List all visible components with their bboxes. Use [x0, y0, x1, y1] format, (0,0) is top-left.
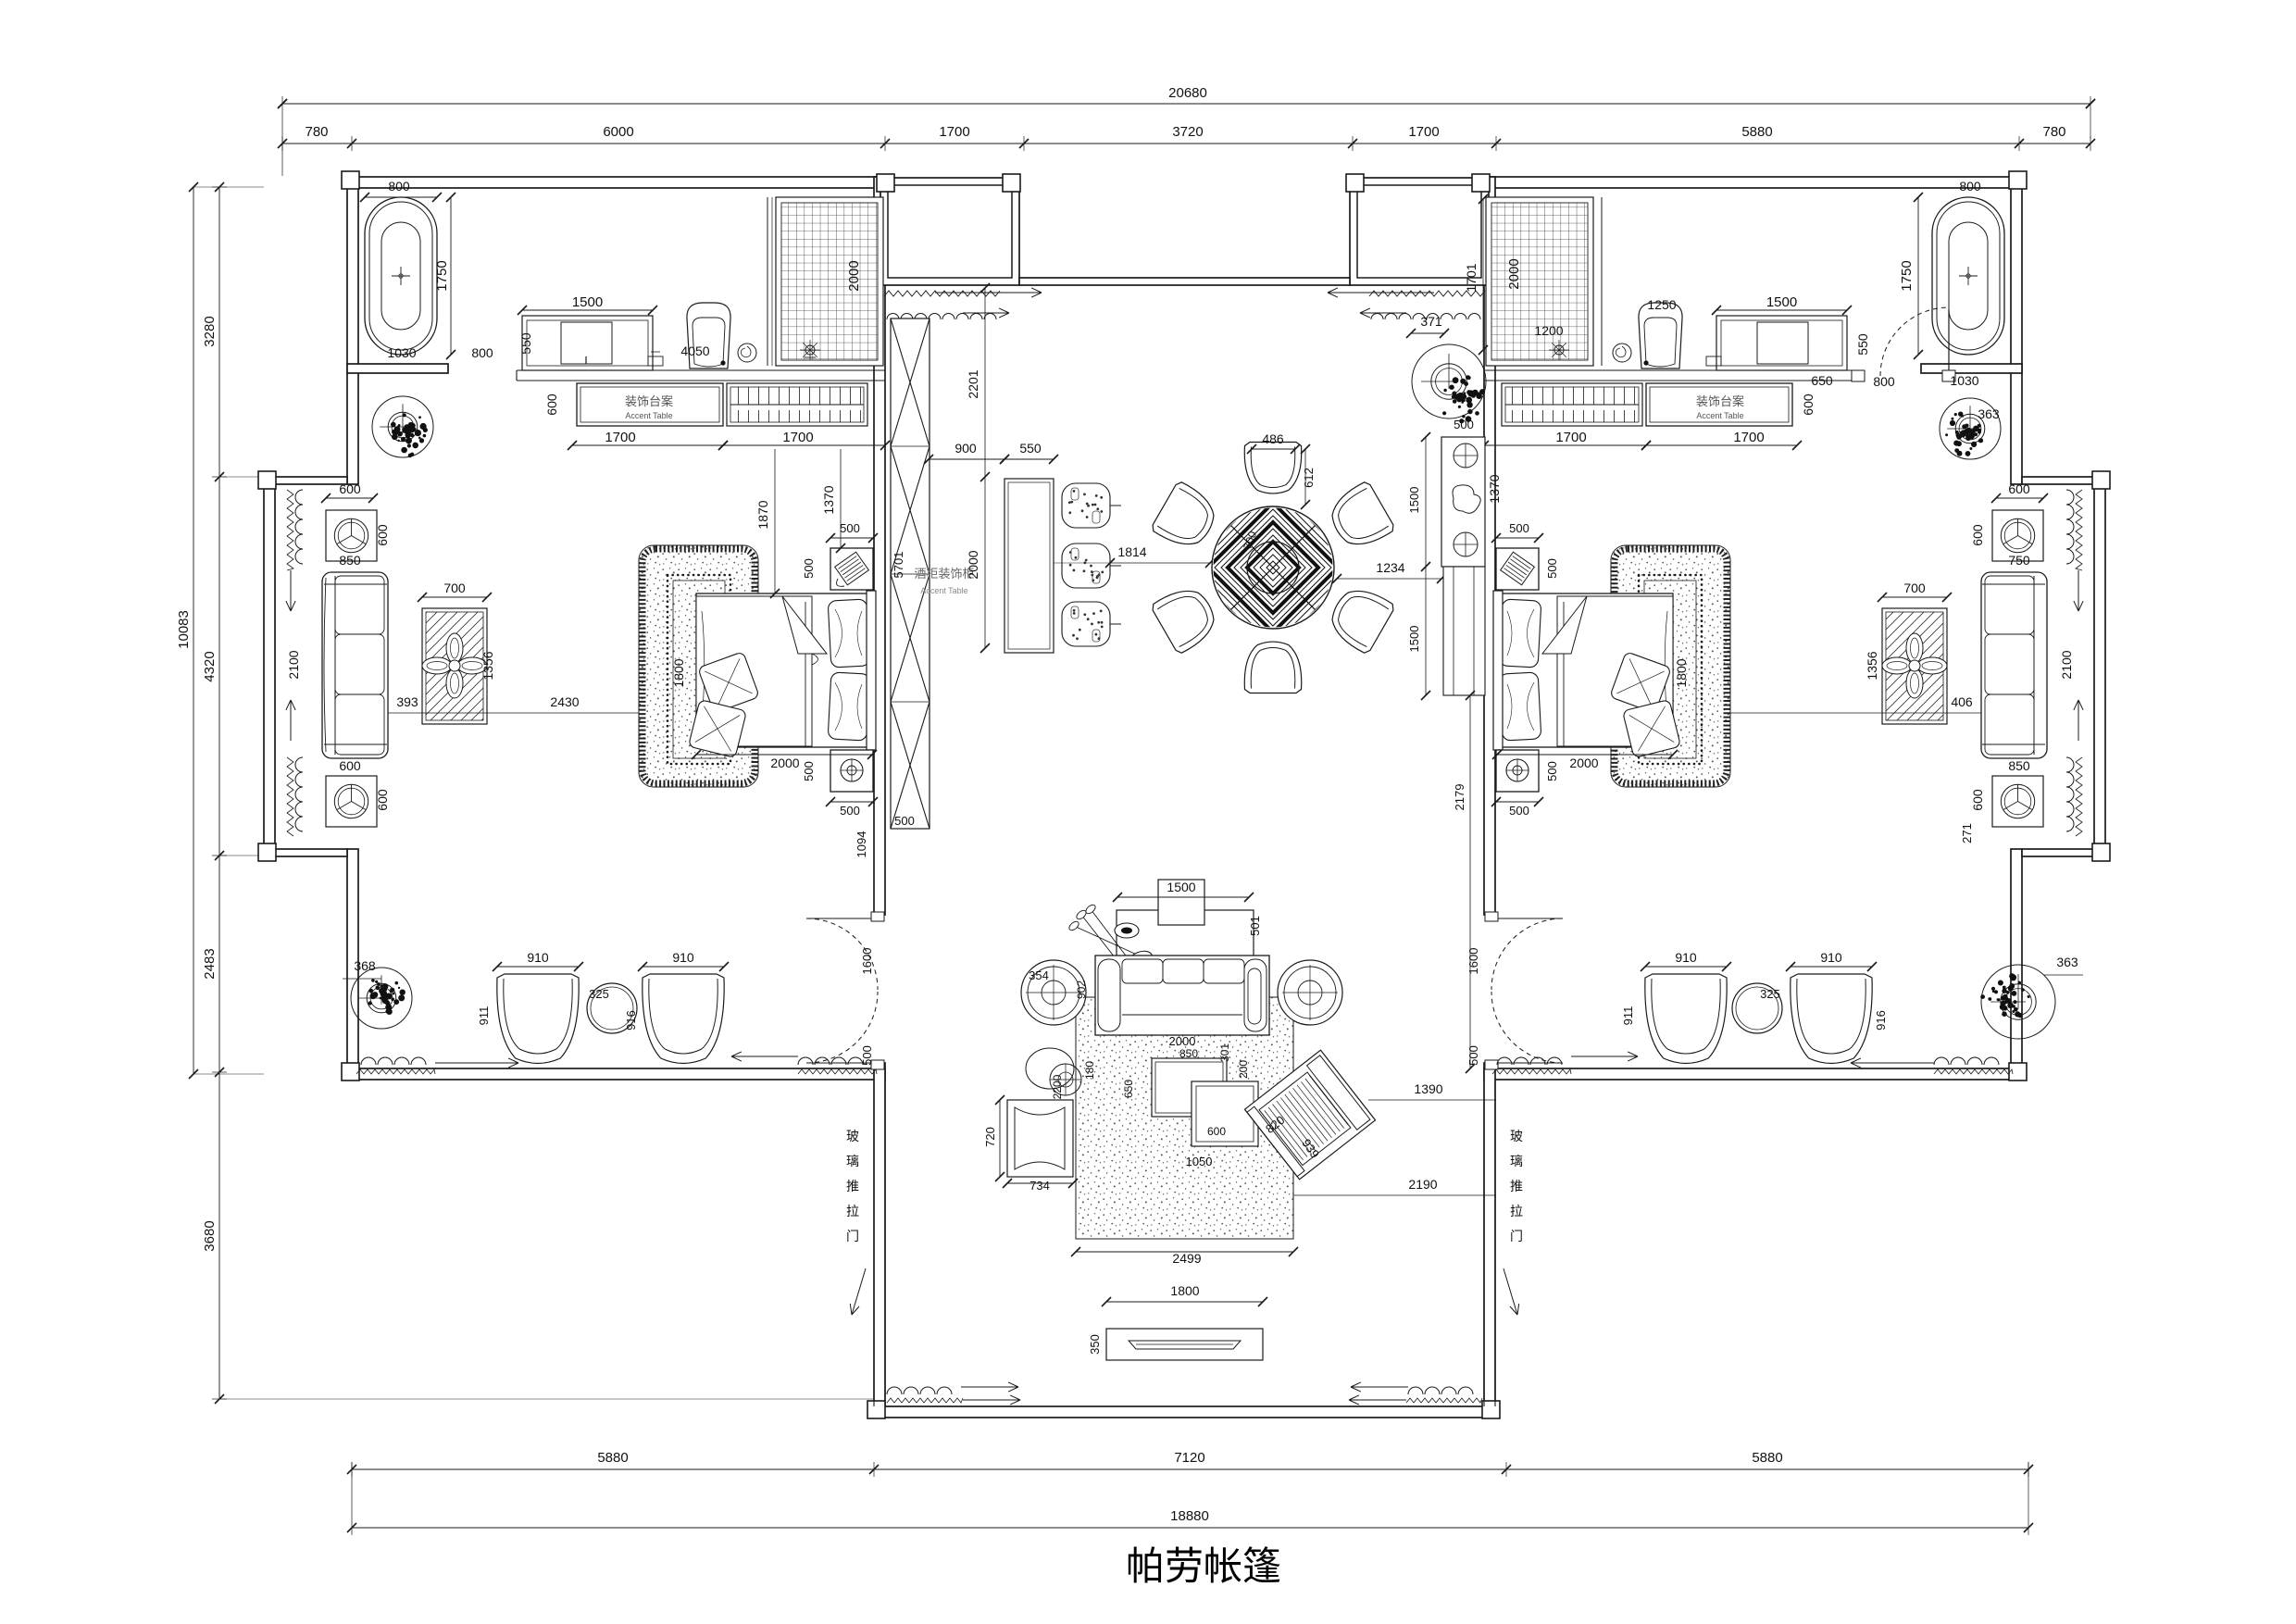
svg-text:780: 780 — [2042, 124, 2065, 140]
svg-text:500: 500 — [840, 804, 860, 818]
svg-text:2190: 2190 — [1408, 1177, 1437, 1192]
svg-text:1234: 1234 — [1376, 560, 1404, 575]
svg-text:1370: 1370 — [821, 485, 836, 514]
svg-text:325: 325 — [589, 987, 609, 1001]
svg-text:780: 780 — [305, 124, 328, 140]
svg-text:2000: 2000 — [1569, 756, 1598, 770]
svg-text:3280: 3280 — [202, 316, 218, 346]
svg-text:帕劳帐篷: 帕劳帐篷 — [1126, 1546, 1281, 1589]
svg-text:600: 600 — [1801, 394, 1816, 416]
svg-text:500: 500 — [840, 521, 860, 535]
svg-text:5880: 5880 — [1752, 1450, 1782, 1466]
svg-text:180: 180 — [1083, 1061, 1096, 1080]
svg-text:368: 368 — [354, 958, 376, 973]
svg-text:1500: 1500 — [1167, 880, 1195, 894]
svg-text:1500: 1500 — [1766, 294, 1797, 310]
svg-text:拉: 拉 — [846, 1204, 859, 1218]
svg-text:700: 700 — [1903, 581, 1926, 595]
svg-text:600: 600 — [2008, 481, 2030, 496]
svg-text:Accent Table: Accent Table — [1696, 411, 1743, 420]
svg-text:1500: 1500 — [572, 294, 603, 310]
svg-text:800: 800 — [1959, 179, 1981, 194]
svg-text:18880: 18880 — [1170, 1508, 1209, 1524]
svg-text:1600: 1600 — [860, 948, 874, 975]
svg-text:800: 800 — [471, 345, 493, 360]
svg-text:4050: 4050 — [680, 344, 709, 358]
svg-text:271: 271 — [1960, 823, 1974, 843]
svg-text:2100: 2100 — [286, 650, 301, 679]
svg-text:612: 612 — [1302, 468, 1316, 488]
svg-text:2000: 2000 — [1506, 258, 1522, 289]
svg-text:700: 700 — [443, 581, 466, 595]
svg-text:3720: 3720 — [1172, 124, 1203, 140]
svg-text:1356: 1356 — [480, 651, 495, 680]
svg-text:2000: 2000 — [966, 550, 980, 579]
svg-text:600: 600 — [1207, 1125, 1226, 1138]
svg-text:5701: 5701 — [892, 552, 905, 579]
svg-text:5880: 5880 — [597, 1450, 628, 1466]
svg-text:902: 902 — [1075, 981, 1088, 999]
svg-text:1390: 1390 — [1414, 1081, 1442, 1096]
svg-text:911: 911 — [1621, 1006, 1635, 1026]
svg-text:1356: 1356 — [1865, 651, 1879, 680]
svg-text:850: 850 — [2008, 758, 2030, 773]
svg-text:550: 550 — [518, 332, 533, 355]
svg-text:600: 600 — [1970, 524, 1985, 546]
svg-text:500: 500 — [1454, 418, 1474, 431]
svg-text:800: 800 — [388, 179, 410, 194]
svg-text:1094: 1094 — [855, 831, 868, 858]
svg-text:1050: 1050 — [1186, 1155, 1213, 1168]
svg-text:500: 500 — [1509, 804, 1529, 818]
svg-text:1700: 1700 — [605, 430, 635, 445]
svg-text:2100: 2100 — [2059, 650, 2074, 679]
svg-text:354: 354 — [1029, 968, 1049, 982]
svg-text:10083: 10083 — [176, 610, 192, 649]
svg-text:200: 200 — [1237, 1060, 1250, 1079]
svg-text:2179: 2179 — [1453, 784, 1466, 811]
svg-text:600: 600 — [375, 789, 390, 811]
svg-text:720: 720 — [983, 1127, 997, 1147]
svg-text:406: 406 — [1951, 694, 1973, 709]
svg-text:璃: 璃 — [846, 1154, 859, 1168]
svg-text:750: 750 — [2008, 553, 2030, 568]
svg-text:500: 500 — [894, 814, 915, 828]
svg-text:4320: 4320 — [202, 651, 218, 681]
svg-text:门: 门 — [846, 1229, 859, 1243]
svg-text:910: 910 — [527, 950, 549, 965]
svg-text:20680: 20680 — [1168, 85, 1207, 101]
svg-text:6000: 6000 — [603, 124, 633, 140]
svg-text:916: 916 — [1874, 1010, 1888, 1031]
svg-text:486: 486 — [1262, 431, 1284, 446]
svg-text:500: 500 — [1509, 521, 1529, 535]
svg-text:393: 393 — [396, 694, 418, 709]
svg-text:1814: 1814 — [1117, 544, 1146, 559]
svg-text:2201: 2201 — [966, 369, 980, 398]
svg-text:500: 500 — [802, 558, 816, 579]
svg-text:Accent Table: Accent Table — [625, 411, 672, 420]
svg-text:734: 734 — [1029, 1179, 1050, 1193]
svg-text:600: 600 — [339, 481, 361, 496]
svg-text:1370: 1370 — [1487, 474, 1502, 503]
svg-text:1750: 1750 — [434, 260, 450, 291]
svg-text:拉: 拉 — [1510, 1204, 1523, 1218]
svg-text:2000: 2000 — [770, 756, 799, 770]
svg-text:1701: 1701 — [1464, 263, 1479, 292]
svg-text:1200: 1200 — [1534, 323, 1563, 338]
svg-text:璃: 璃 — [1510, 1154, 1523, 1168]
svg-text:500: 500 — [802, 761, 816, 781]
svg-text:501: 501 — [1248, 916, 1262, 936]
svg-text:2000: 2000 — [1169, 1034, 1196, 1048]
svg-text:装饰台案: 装饰台案 — [1696, 394, 1744, 408]
svg-text:推: 推 — [846, 1179, 859, 1193]
svg-text:1750: 1750 — [1899, 260, 1915, 291]
svg-text:910: 910 — [1820, 950, 1842, 965]
svg-text:1500: 1500 — [1407, 626, 1421, 653]
svg-text:600: 600 — [1970, 789, 1985, 811]
svg-text:850: 850 — [339, 553, 361, 568]
svg-text:1700: 1700 — [1408, 124, 1439, 140]
svg-text:301: 301 — [1218, 1043, 1231, 1062]
svg-text:1800: 1800 — [1674, 658, 1689, 687]
svg-text:910: 910 — [672, 950, 694, 965]
svg-text:1800: 1800 — [1170, 1283, 1199, 1298]
svg-text:500: 500 — [1545, 558, 1559, 579]
svg-text:500: 500 — [1545, 761, 1559, 781]
svg-text:1500: 1500 — [1407, 487, 1421, 514]
svg-text:1700: 1700 — [782, 430, 813, 445]
svg-text:推: 推 — [1510, 1179, 1523, 1193]
svg-text:650: 650 — [1122, 1080, 1135, 1098]
svg-text:1800: 1800 — [671, 658, 686, 687]
svg-text:1600: 1600 — [1466, 948, 1480, 975]
svg-text:1030: 1030 — [1950, 373, 1978, 388]
svg-text:2000: 2000 — [846, 260, 862, 291]
svg-text:500: 500 — [1466, 1045, 1480, 1066]
svg-text:910: 910 — [1675, 950, 1697, 965]
svg-text:5880: 5880 — [1741, 124, 1772, 140]
svg-text:3680: 3680 — [202, 1220, 218, 1251]
svg-text:800: 800 — [1873, 374, 1895, 389]
svg-text:玻: 玻 — [1510, 1129, 1523, 1143]
svg-text:600: 600 — [339, 758, 361, 773]
svg-text:916: 916 — [624, 1010, 638, 1031]
svg-text:2483: 2483 — [202, 948, 218, 979]
svg-text:玻: 玻 — [846, 1129, 859, 1143]
svg-text:900: 900 — [955, 441, 977, 456]
svg-text:门: 门 — [1510, 1229, 1523, 1243]
svg-text:550: 550 — [1019, 441, 1042, 456]
svg-text:1030: 1030 — [387, 345, 416, 360]
svg-text:1700: 1700 — [1733, 430, 1764, 445]
svg-text:2430: 2430 — [550, 694, 579, 709]
svg-text:7120: 7120 — [1174, 1450, 1204, 1466]
svg-text:2200: 2200 — [1051, 1074, 1064, 1099]
svg-text:1700: 1700 — [1555, 430, 1586, 445]
svg-text:650: 650 — [1811, 373, 1833, 388]
svg-text:850: 850 — [1179, 1047, 1198, 1060]
svg-text:911: 911 — [477, 1006, 491, 1026]
svg-text:2499: 2499 — [1172, 1251, 1201, 1266]
svg-text:Accent Table: Accent Table — [920, 586, 967, 595]
svg-text:350: 350 — [1088, 1334, 1102, 1355]
svg-text:371: 371 — [1420, 314, 1442, 329]
svg-text:600: 600 — [544, 394, 559, 416]
svg-text:550: 550 — [1855, 333, 1870, 356]
svg-text:1700: 1700 — [939, 124, 969, 140]
svg-text:1870: 1870 — [755, 500, 770, 529]
svg-text:363: 363 — [2056, 955, 2078, 969]
svg-text:1250: 1250 — [1647, 297, 1676, 312]
svg-text:325: 325 — [1760, 987, 1780, 1001]
svg-text:装饰台案: 装饰台案 — [625, 394, 673, 408]
svg-text:600: 600 — [375, 524, 390, 546]
svg-text:363: 363 — [1978, 406, 2000, 421]
